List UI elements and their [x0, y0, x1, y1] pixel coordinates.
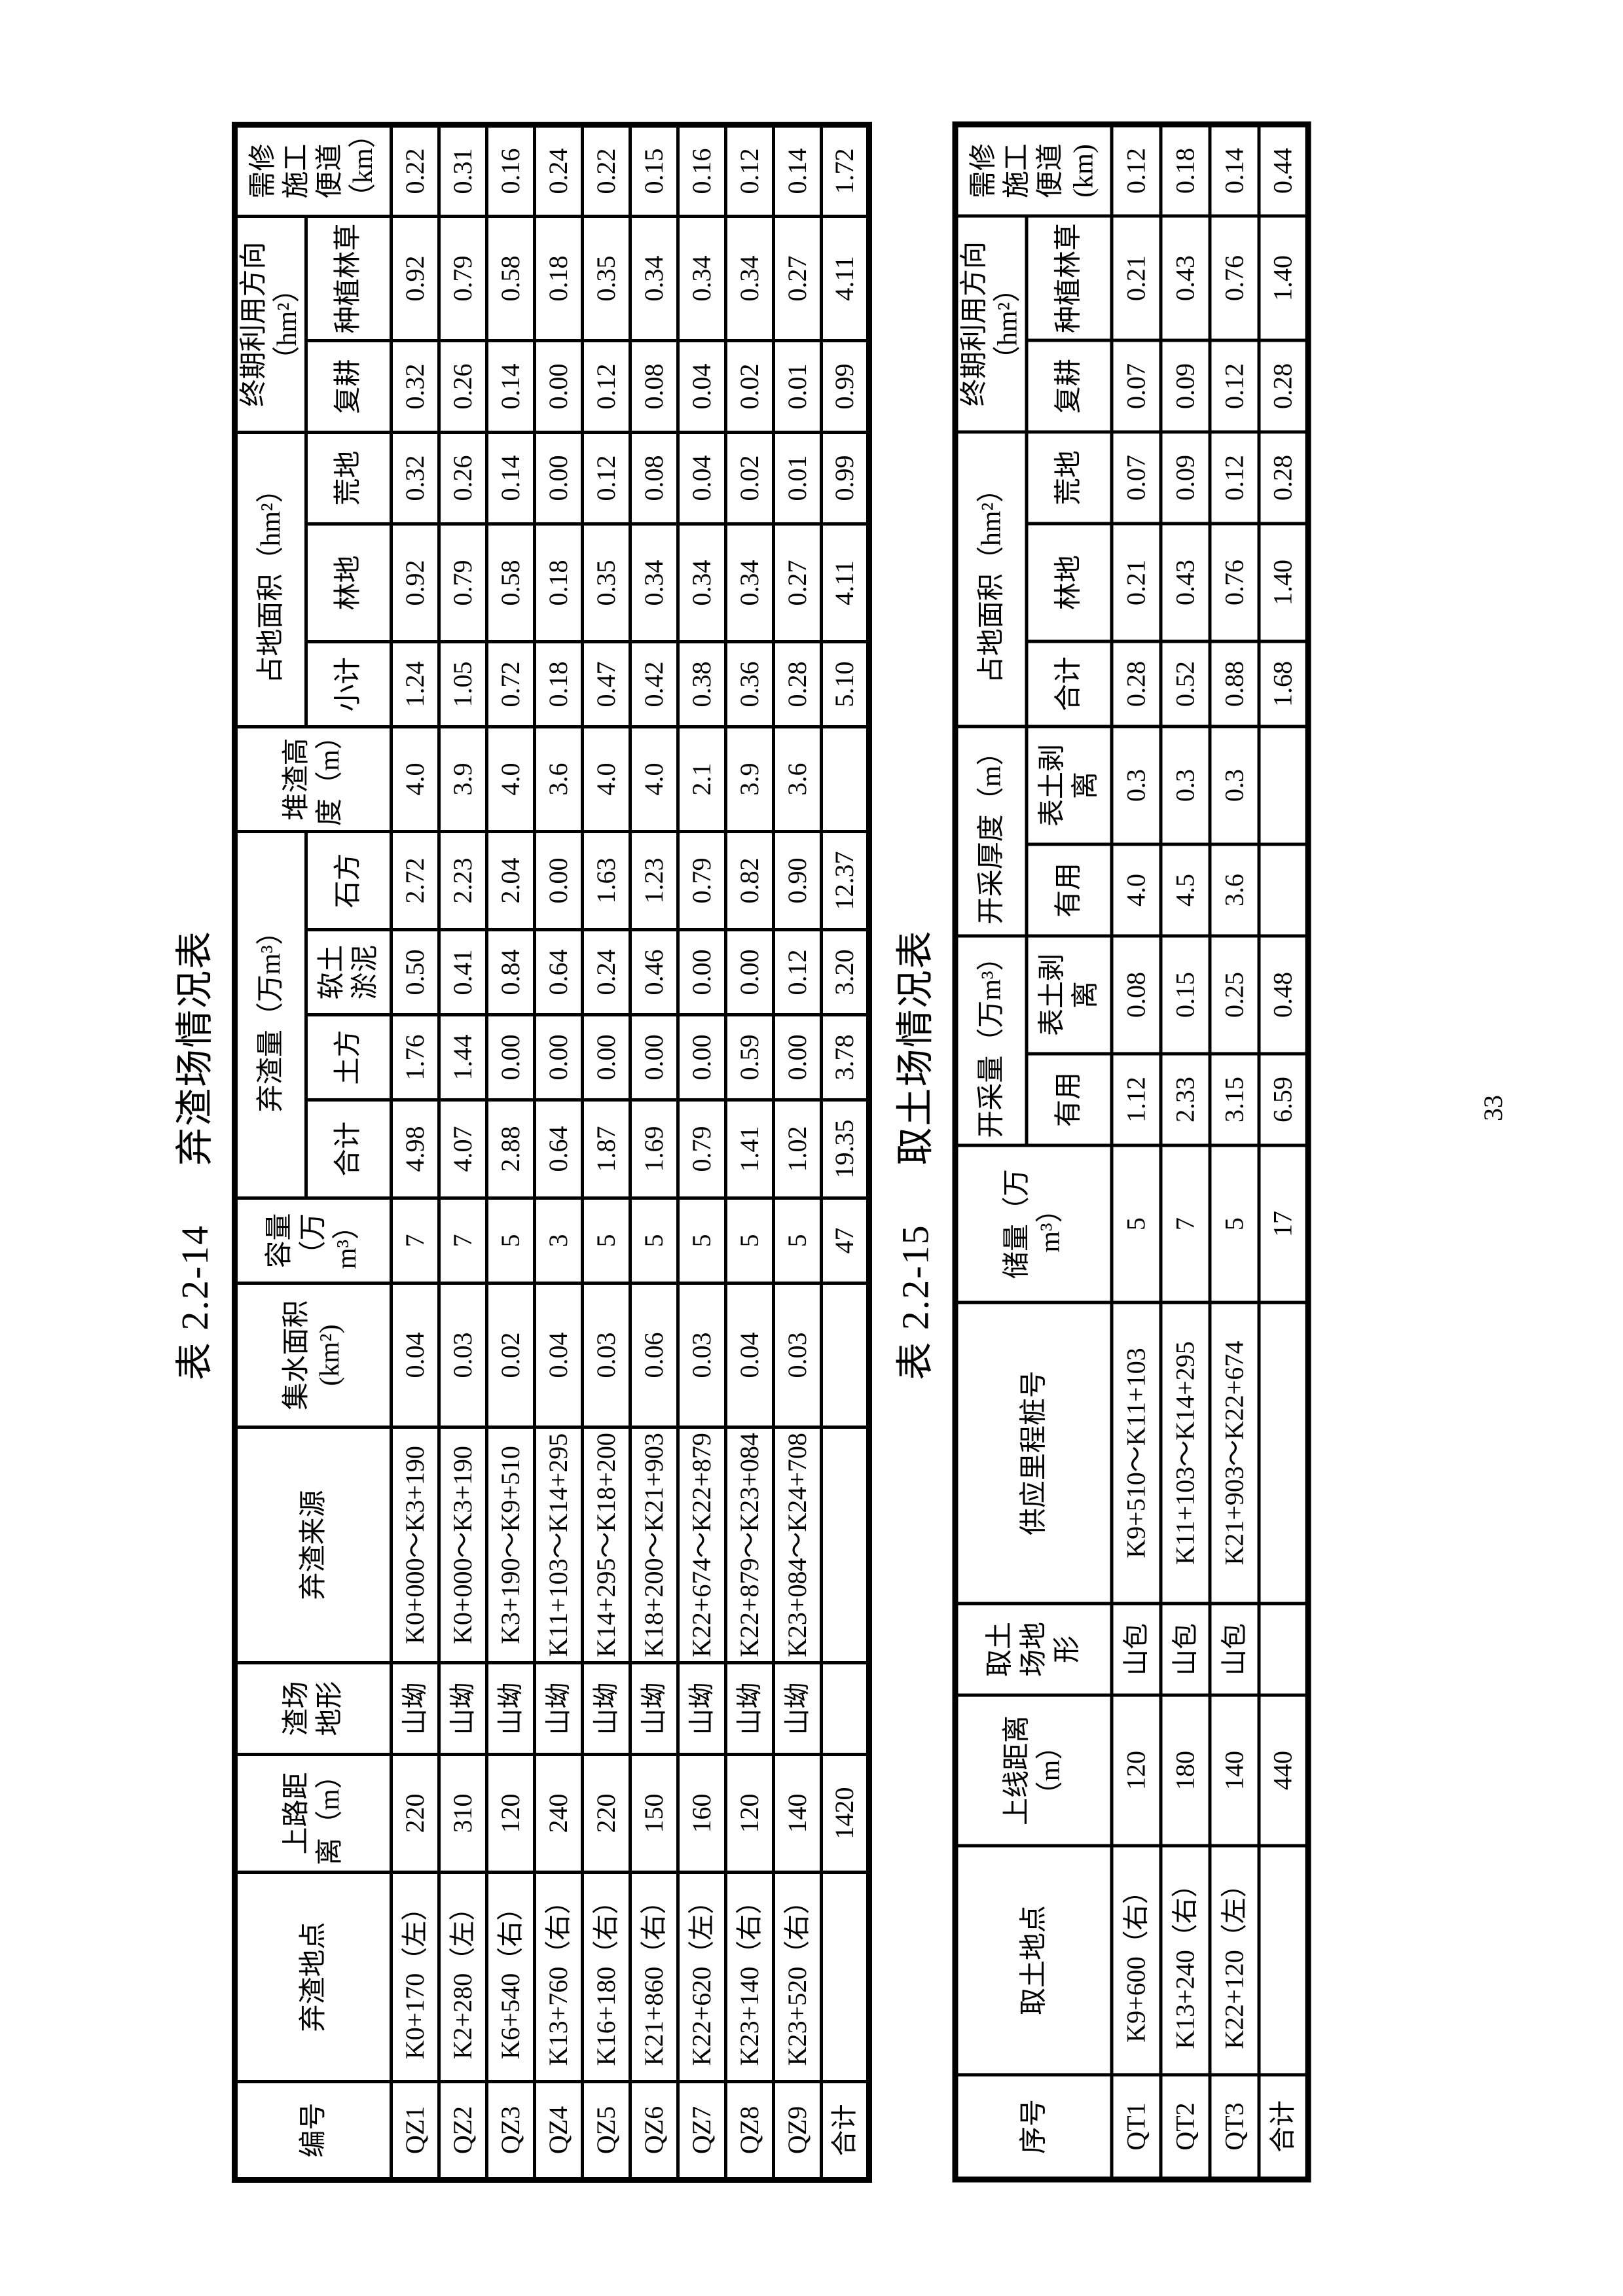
cell: 0.22 [583, 124, 630, 216]
col-subheader: 土方 [306, 1015, 392, 1100]
cell: 0.14 [774, 124, 822, 216]
cell: 0.25 [1210, 936, 1259, 1054]
cell: K9+510～K11+103 [1112, 1302, 1161, 1604]
table-row: 合计14204719.353.783.2012.375.104.110.990.… [822, 124, 869, 2179]
page-number: 33 [1473, 1088, 1512, 1128]
cell: 4.11 [822, 216, 869, 340]
cell: 0.35 [583, 524, 630, 641]
cell: K22+879～K23+084 [726, 1427, 774, 1663]
waste-slag-table-block: 表 2.2-14弃渣场情况表 编号弃渣地点上路距离（m）渣场地形弃渣来源集水面积… [150, 128, 856, 2183]
cell: K9+600（右） [1112, 1846, 1161, 2075]
cell: 5 [678, 1198, 726, 1283]
cell: 1.02 [774, 1100, 822, 1198]
cell: K22+120（左） [1210, 1846, 1259, 2075]
col-header: 占地面积（hm²） [235, 432, 306, 726]
cell: 2.33 [1161, 1054, 1210, 1145]
cell: 1.72 [822, 124, 869, 216]
cell: 4.98 [392, 1100, 439, 1198]
cell: 4.07 [439, 1100, 487, 1198]
cell [1259, 1846, 1308, 2075]
cell: 0.04 [392, 1283, 439, 1427]
cell: 0.28 [774, 641, 822, 726]
cell: 0.99 [822, 432, 869, 524]
cell: 7 [439, 1198, 487, 1283]
cell: 0.08 [630, 432, 678, 524]
col-subheader: 表土剥离 [1027, 936, 1112, 1054]
cell: 0.58 [487, 216, 535, 340]
cell: 220 [392, 1755, 439, 1873]
cell: 0.15 [630, 124, 678, 216]
cell [1259, 726, 1308, 844]
cell: K13+760（右） [535, 1873, 583, 2082]
col-header: 堆渣高度（m） [235, 726, 392, 831]
col-subheader: 石方 [306, 831, 392, 929]
cell: 0.79 [678, 1100, 726, 1198]
cell: 0.00 [726, 930, 774, 1015]
waste-slag-table: 编号弃渣地点上路距离（m）渣场地形弃渣来源集水面积(km²)容量（万m³）弃渣量… [232, 122, 872, 2183]
cell: 0.34 [630, 216, 678, 340]
table1-title: 表 2.2-14弃渣场情况表 [150, 128, 232, 2183]
cell: 0.12 [583, 340, 630, 432]
col-header: 上线距离（m） [955, 1695, 1112, 1846]
col-subheader: 小计 [306, 641, 392, 726]
cell: 0.88 [1210, 641, 1259, 726]
cell: 310 [439, 1755, 487, 1873]
table-row: QZ4K13+760（右）240山坳K11+103～K14+2950.0430.… [535, 124, 583, 2179]
cell: 1.44 [439, 1015, 487, 1100]
cell: 0.46 [630, 930, 678, 1015]
table-row: QZ2K2+280（左）310山坳K0+000～K3+1900.0374.071… [439, 124, 487, 2179]
cell: 0.36 [726, 641, 774, 726]
cell: 4.0 [392, 726, 439, 831]
cell: 0.18 [535, 641, 583, 726]
cell: 0.14 [1210, 124, 1259, 216]
cell: 0.28 [1259, 340, 1308, 432]
cell: 1.63 [583, 831, 630, 929]
table-row: QZ5K16+180（右）220山坳K14+295～K18+2000.0351.… [583, 124, 630, 2179]
cell: 1.40 [1259, 524, 1308, 641]
cell: K3+190～K9+510 [487, 1427, 535, 1663]
col-header: 容量（万m³） [235, 1198, 392, 1283]
table1-name: 弃渣场情况表 [164, 930, 219, 1166]
cell: 19.35 [822, 1100, 869, 1198]
cell [822, 1663, 869, 1755]
cell: 5.10 [822, 641, 869, 726]
cell: 0.09 [1161, 340, 1210, 432]
cell: 0.35 [583, 216, 630, 340]
cell: 0.03 [439, 1283, 487, 1427]
cell: 0.12 [1112, 124, 1161, 216]
table-row: QZ6K21+860（右）150山坳K18+200～K21+9030.0651.… [630, 124, 678, 2179]
cell: 0.27 [774, 524, 822, 641]
cell: 0.12 [1210, 432, 1259, 524]
col-subheader: 合计 [1027, 641, 1112, 726]
col-subheader: 复耕 [306, 340, 392, 432]
cell: 17 [1259, 1145, 1308, 1302]
cell: 0.06 [630, 1283, 678, 1427]
cell: 440 [1259, 1695, 1308, 1846]
cell: 0.02 [726, 432, 774, 524]
cell: 0.31 [439, 124, 487, 216]
table-row: QT3K22+120（左）140山包K21+903～K22+67453.150.… [1210, 124, 1259, 2179]
cell: 合计 [1259, 2075, 1308, 2179]
cell [822, 1283, 869, 1427]
cell: 0.08 [1112, 936, 1161, 1054]
cell: 0.92 [392, 216, 439, 340]
cell: 4.0 [583, 726, 630, 831]
cell: 0.21 [1112, 216, 1161, 340]
cell: 0.12 [1210, 340, 1259, 432]
cell: 1.24 [392, 641, 439, 726]
cell: 0.09 [1161, 432, 1210, 524]
cell: 2.23 [439, 831, 487, 929]
cell: 0.08 [630, 340, 678, 432]
cell: 0.15 [1161, 936, 1210, 1054]
col-header: 供应里程桩号 [955, 1302, 1112, 1604]
cell: 3.9 [439, 726, 487, 831]
col-header: 取土地点 [955, 1846, 1112, 2075]
cell: 2.1 [678, 726, 726, 831]
col-header: 终期利用方向（hm²） [235, 216, 306, 432]
cell: 2.88 [487, 1100, 535, 1198]
cell: 山坳 [774, 1663, 822, 1755]
cell: 1.87 [583, 1100, 630, 1198]
cell: 140 [1210, 1695, 1259, 1846]
cell: QZ5 [583, 2082, 630, 2180]
cell: K2+280（左） [439, 1873, 487, 2082]
cell: 0.14 [487, 340, 535, 432]
cell: 120 [726, 1755, 774, 1873]
col-subheader: 林地 [1027, 524, 1112, 641]
cell: 0.18 [535, 524, 583, 641]
table2-name: 取土场情况表 [884, 929, 939, 1165]
cell: 0.41 [439, 930, 487, 1015]
cell: K11+103～K14+295 [535, 1427, 583, 1663]
cell: 120 [487, 1755, 535, 1873]
cell: QZ4 [535, 2082, 583, 2180]
cell: 3.20 [822, 930, 869, 1015]
cell: 0.52 [1161, 641, 1210, 726]
cell: 2.72 [392, 831, 439, 929]
document-page: 表 2.2-14弃渣场情况表 编号弃渣地点上路距离（m）渣场地形弃渣来源集水面积… [0, 0, 1623, 2296]
cell: 0.50 [392, 930, 439, 1015]
cell [822, 1873, 869, 2082]
cell: 0.16 [487, 124, 535, 216]
cell: 220 [583, 1755, 630, 1873]
cell: 合计 [822, 2082, 869, 2180]
cell: K21+903～K22+674 [1210, 1302, 1259, 1604]
cell [1259, 844, 1308, 936]
col-header: 弃渣量（万m³） [235, 831, 306, 1198]
cell [822, 726, 869, 831]
cell: 5 [774, 1198, 822, 1283]
cell [1259, 1604, 1308, 1695]
cell: 0.24 [535, 124, 583, 216]
cell: K13+240（右） [1161, 1846, 1210, 2075]
cell: 240 [535, 1755, 583, 1873]
cell: 0.02 [726, 340, 774, 432]
cell: 3.6 [774, 726, 822, 831]
col-header: 占地面积（hm²） [955, 432, 1027, 726]
cell: 0.76 [1210, 216, 1259, 340]
cell: 2.04 [487, 831, 535, 929]
col-header: 储量（万m³） [955, 1145, 1112, 1302]
cell: K16+180（右） [583, 1873, 630, 2082]
cell: 0.00 [678, 1015, 726, 1100]
cell: 0.92 [392, 524, 439, 641]
cell: QZ6 [630, 2082, 678, 2180]
cell: K0+000～K3+190 [439, 1427, 487, 1663]
col-header: 序号 [955, 2075, 1112, 2179]
col-header: 弃渣来源 [235, 1427, 392, 1663]
cell: 0.79 [439, 524, 487, 641]
cell: 0.82 [726, 831, 774, 929]
cell: 山包 [1161, 1604, 1210, 1695]
cell: 0.22 [392, 124, 439, 216]
col-subheader: 种植林草 [306, 216, 392, 340]
cell: 0.47 [583, 641, 630, 726]
cell [822, 1427, 869, 1663]
cell: 山坳 [535, 1663, 583, 1755]
cell: 山包 [1210, 1604, 1259, 1695]
col-header: 渣场地形 [235, 1663, 392, 1755]
cell: 0.64 [535, 1100, 583, 1198]
cell: 12.37 [822, 831, 869, 929]
cell: 3 [535, 1198, 583, 1283]
cell: 5 [726, 1198, 774, 1283]
col-subheader: 林地 [306, 524, 392, 641]
cell: 0.03 [583, 1283, 630, 1427]
cell: 4.0 [487, 726, 535, 831]
table-row: QZ9K23+520（右）140山坳K23+084～K24+7080.0351.… [774, 124, 822, 2179]
cell: 0.34 [726, 216, 774, 340]
col-subheader: 有用 [1027, 844, 1112, 936]
cell: 0.01 [774, 432, 822, 524]
cell: 0.07 [1112, 340, 1161, 432]
col-subheader: 荒地 [306, 432, 392, 524]
borrow-pit-table-block: 表 2.2-15取土场情况表 序号取土地点上线距离（m）取土场地形供应里程桩号储… [871, 128, 1297, 2183]
cell: 0.26 [439, 340, 487, 432]
cell: 1420 [822, 1755, 869, 1873]
cell: 7 [392, 1198, 439, 1283]
table-row: QZ8K23+140（右）120山坳K22+879～K23+0840.0451.… [726, 124, 774, 2179]
cell: 0.00 [535, 1015, 583, 1100]
cell: K23+520（右） [774, 1873, 822, 2082]
cell: QZ1 [392, 2082, 439, 2180]
col-subheader: 复耕 [1027, 340, 1112, 432]
col-header: 需修施工便道（km） [235, 124, 392, 216]
cell: 4.5 [1161, 844, 1210, 936]
cell: 山包 [1112, 1604, 1161, 1695]
cell: 3.6 [535, 726, 583, 831]
cell: K6+540（右） [487, 1873, 535, 2082]
col-header: 集水面积(km²) [235, 1283, 392, 1427]
cell: 0.34 [678, 216, 726, 340]
cell: 0.32 [392, 340, 439, 432]
col-subheader: 合计 [306, 1100, 392, 1198]
cell: 0.12 [726, 124, 774, 216]
cell: 6.59 [1259, 1054, 1308, 1145]
table-row: QT1K9+600（右）120山包K9+510～K11+10351.120.08… [1112, 124, 1161, 2179]
borrow-pit-table: 序号取土地点上线距离（m）取土场地形供应里程桩号储量（万m³）开采量（万m³）开… [953, 121, 1311, 2182]
cell: 0.03 [678, 1283, 726, 1427]
cell: 0.48 [1259, 936, 1308, 1054]
cell: 0.42 [630, 641, 678, 726]
cell: QZ7 [678, 2082, 726, 2180]
cell: 0.72 [487, 641, 535, 726]
cell: 0.00 [535, 340, 583, 432]
cell: 1.69 [630, 1100, 678, 1198]
cell: 0.3 [1210, 726, 1259, 844]
cell: 0.64 [535, 930, 583, 1015]
cell: 0.12 [583, 432, 630, 524]
cell: K0+000～K3+190 [392, 1427, 439, 1663]
cell: 1.23 [630, 831, 678, 929]
cell: 0.58 [487, 524, 535, 641]
cell: 0.3 [1161, 726, 1210, 844]
cell: 山坳 [392, 1663, 439, 1755]
col-header: 开采量（万m³） [955, 936, 1027, 1145]
cell: 0.34 [630, 524, 678, 641]
table-row: QZ7K22+620（左）160山坳K22+674～K22+8790.0350.… [678, 124, 726, 2179]
cell: 1.76 [392, 1015, 439, 1100]
cell: 0.3 [1112, 726, 1161, 844]
cell: 1.05 [439, 641, 487, 726]
cell: 120 [1112, 1695, 1161, 1846]
cell: 山坳 [726, 1663, 774, 1755]
cell: 0.02 [487, 1283, 535, 1427]
cell: K21+860（右） [630, 1873, 678, 2082]
col-header: 编号 [235, 2082, 392, 2180]
cell: K22+620（左） [678, 1873, 726, 2082]
cell: 0.24 [583, 930, 630, 1015]
table-row: QZ3K6+540（右）120山坳K3+190～K9+5100.0252.880… [487, 124, 535, 2179]
table-row: QZ1K0+170（左）220山坳K0+000～K3+1900.0474.981… [392, 124, 439, 2179]
cell: 160 [678, 1755, 726, 1873]
col-header: 需修施工便道(km) [955, 124, 1112, 216]
cell: 山坳 [630, 1663, 678, 1755]
cell: K23+084～K24+708 [774, 1427, 822, 1663]
col-header: 上路距离（m） [235, 1755, 392, 1873]
cell: 0.43 [1161, 524, 1210, 641]
cell: 0.79 [678, 831, 726, 929]
cell: QZ8 [726, 2082, 774, 2180]
cell: 0.99 [822, 340, 869, 432]
cell: K14+295～K18+200 [583, 1427, 630, 1663]
cell: 0.04 [535, 1283, 583, 1427]
cell: 0.04 [678, 340, 726, 432]
cell: 4.0 [1112, 844, 1161, 936]
cell: 0.12 [774, 930, 822, 1015]
cell: K22+674～K22+879 [678, 1427, 726, 1663]
cell: 0.00 [630, 1015, 678, 1100]
cell: 47 [822, 1198, 869, 1283]
col-subheader: 软土淤泥 [306, 930, 392, 1015]
cell: 1.12 [1112, 1054, 1161, 1145]
cell: 0.44 [1259, 124, 1308, 216]
cell: K11+103～K14+295 [1161, 1302, 1210, 1604]
table-row: 合计440176.590.481.681.400.280.281.400.44 [1259, 124, 1308, 2179]
cell: 3.78 [822, 1015, 869, 1100]
col-subheader: 有用 [1027, 1054, 1112, 1145]
cell: 0.34 [678, 524, 726, 641]
cell: 0.00 [774, 1015, 822, 1100]
cell: 山坳 [439, 1663, 487, 1755]
cell: 5 [1112, 1145, 1161, 1302]
cell: 0.59 [726, 1015, 774, 1100]
cell: 0.01 [774, 340, 822, 432]
cell: 0.34 [726, 524, 774, 641]
cell: 0.03 [774, 1283, 822, 1427]
cell: QZ2 [439, 2082, 487, 2180]
cell: 0.84 [487, 930, 535, 1015]
cell: 0.90 [774, 831, 822, 929]
cell: 0.79 [439, 216, 487, 340]
col-subheader: 表土剥离 [1027, 726, 1112, 844]
cell: 0.04 [678, 432, 726, 524]
cell: 1.68 [1259, 641, 1308, 726]
cell: 0.16 [678, 124, 726, 216]
cell: 4.11 [822, 524, 869, 641]
cell: 0.18 [1161, 124, 1210, 216]
cell: 4.0 [630, 726, 678, 831]
cell: 140 [774, 1755, 822, 1873]
cell: 180 [1161, 1695, 1210, 1846]
cell: 0.76 [1210, 524, 1259, 641]
cell: 3.6 [1210, 844, 1259, 936]
cell: 山坳 [583, 1663, 630, 1755]
cell: 0.32 [392, 432, 439, 524]
cell: QT1 [1112, 2075, 1161, 2179]
col-header: 终期利用方向（hm²） [955, 216, 1027, 432]
cell: 0.00 [583, 1015, 630, 1100]
cell: 0.00 [535, 432, 583, 524]
cell: QZ9 [774, 2082, 822, 2180]
table-row: QT2K13+240（右）180山包K11+103～K14+29572.330.… [1161, 124, 1210, 2179]
col-subheader: 荒地 [1027, 432, 1112, 524]
cell: 7 [1161, 1145, 1210, 1302]
cell: 0.38 [678, 641, 726, 726]
cell: 0.00 [487, 1015, 535, 1100]
cell: 5 [487, 1198, 535, 1283]
col-header: 弃渣地点 [235, 1873, 392, 2082]
cell: 0.00 [678, 930, 726, 1015]
cell: 5 [630, 1198, 678, 1283]
table1-number: 表 2.2-14 [164, 1225, 219, 1380]
cell: 0.04 [726, 1283, 774, 1427]
cell: 3.9 [726, 726, 774, 831]
cell: 0.21 [1112, 524, 1161, 641]
cell: 0.07 [1112, 432, 1161, 524]
cell: 0.14 [487, 432, 535, 524]
cell: 3.15 [1210, 1054, 1259, 1145]
col-header: 开采厚度（m） [955, 726, 1027, 936]
cell: QT2 [1161, 2075, 1210, 2179]
cell: QT3 [1210, 2075, 1259, 2179]
cell: 150 [630, 1755, 678, 1873]
cell: 1.41 [726, 1100, 774, 1198]
cell: 0.00 [535, 831, 583, 929]
col-subheader: 种植林草 [1027, 216, 1112, 340]
cell: 0.18 [535, 216, 583, 340]
cell: 山坳 [678, 1663, 726, 1755]
cell: 0.28 [1112, 641, 1161, 726]
cell: 0.27 [774, 216, 822, 340]
cell: K23+140（右） [726, 1873, 774, 2082]
cell: 5 [1210, 1145, 1259, 1302]
cell: QZ3 [487, 2082, 535, 2180]
cell: K0+170（左） [392, 1873, 439, 2082]
